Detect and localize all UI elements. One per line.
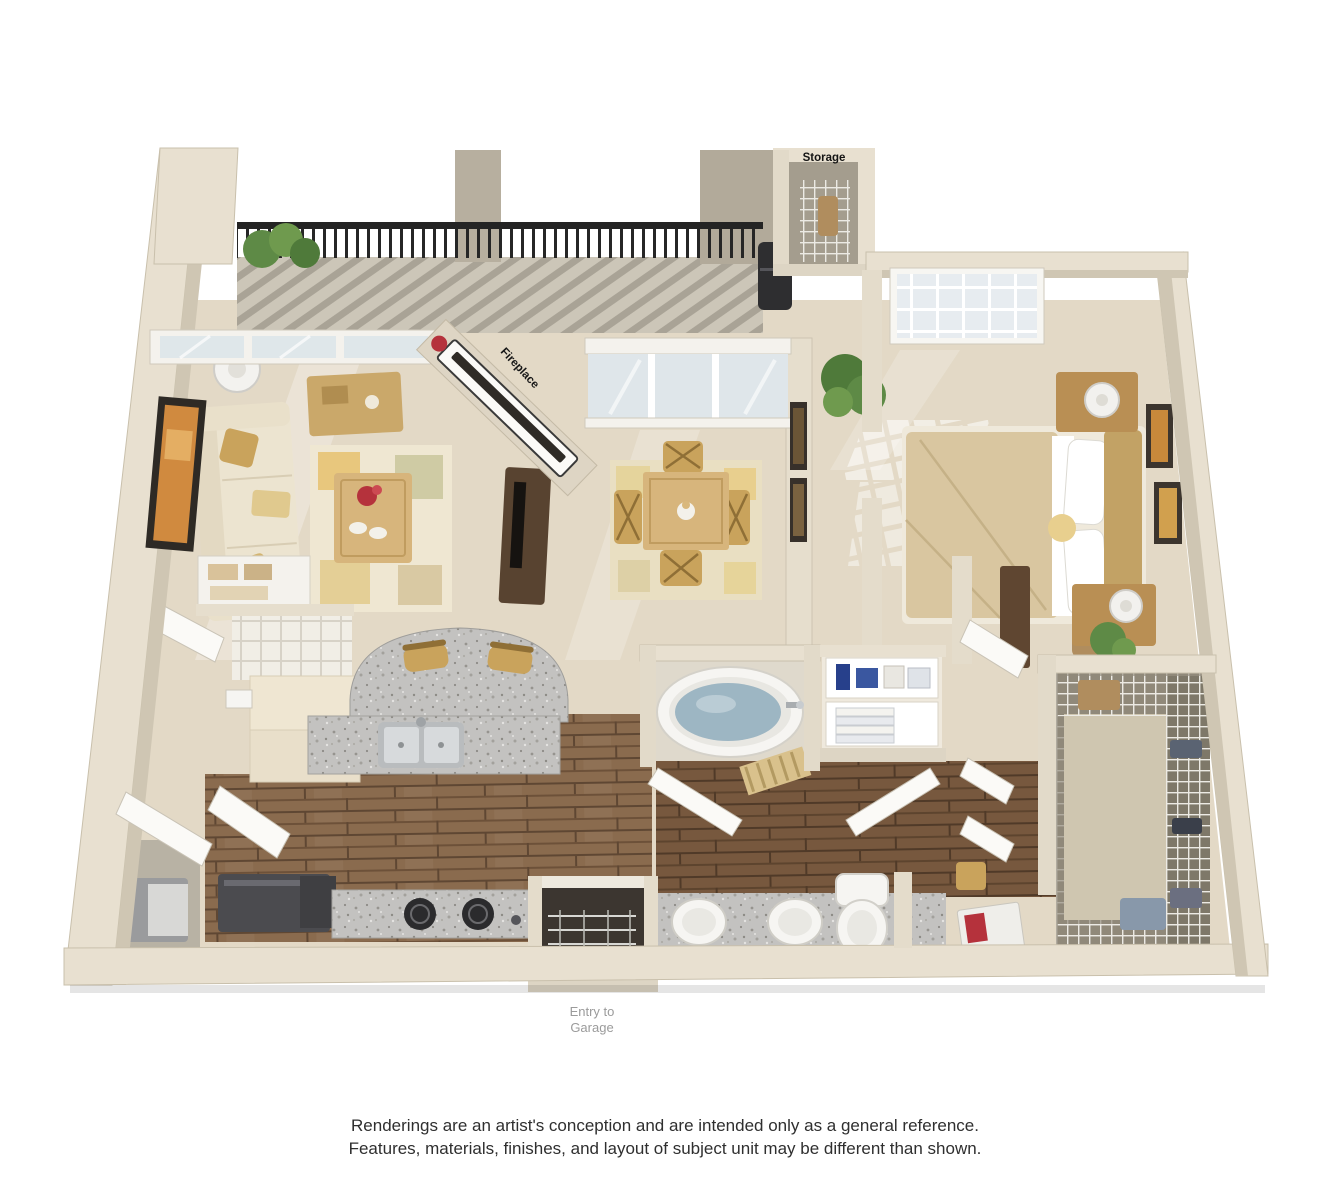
tub-faucet-knob bbox=[796, 701, 804, 709]
water-highlight bbox=[696, 695, 736, 713]
centerpiece bbox=[682, 501, 690, 509]
end-table bbox=[306, 372, 403, 437]
hanging-clothes bbox=[1170, 888, 1202, 908]
entry-tile-floor bbox=[232, 616, 352, 680]
sink-counter bbox=[308, 716, 560, 774]
bedroom-left-wall bbox=[862, 270, 882, 432]
stove-burner bbox=[462, 898, 494, 930]
niche-top-wall bbox=[820, 645, 946, 657]
disclaimer-line2: Features, materials, finishes, and layou… bbox=[0, 1137, 1330, 1160]
storage-room: Storage bbox=[773, 148, 875, 276]
floorplan-rendering: Storage bbox=[0, 0, 1330, 1200]
door-header bbox=[585, 338, 791, 354]
pillow bbox=[1063, 439, 1109, 526]
disclaimer: Renderings are an artist's conception an… bbox=[0, 1114, 1330, 1160]
bath-shelves bbox=[822, 652, 942, 756]
wall bbox=[773, 150, 789, 276]
bath-right-wall bbox=[804, 645, 820, 771]
window-glass bbox=[344, 336, 428, 358]
oven bbox=[300, 876, 336, 928]
rug-patch bbox=[398, 565, 442, 605]
sink-drain bbox=[438, 742, 444, 748]
door-mullion bbox=[712, 354, 719, 420]
art bbox=[1151, 410, 1168, 462]
dining-chair bbox=[614, 490, 642, 544]
folded-linens bbox=[244, 564, 272, 580]
kitchen-faucet bbox=[416, 717, 426, 727]
throw-blanket bbox=[251, 490, 291, 519]
accent-pillow bbox=[1048, 514, 1076, 542]
dining-sliding-door bbox=[585, 338, 791, 428]
entry-label-line1: Entry to bbox=[570, 1004, 615, 1019]
end-table-item bbox=[365, 395, 379, 409]
wall-art-frame bbox=[1154, 482, 1182, 544]
small-stool bbox=[956, 862, 986, 890]
art bbox=[793, 484, 804, 536]
shelf-box bbox=[1078, 680, 1120, 710]
foliage bbox=[823, 387, 853, 417]
balcony-deck bbox=[237, 257, 763, 333]
washer-lid bbox=[148, 884, 188, 936]
entry-label: Entry to Garage bbox=[570, 1004, 615, 1035]
dining-chair bbox=[660, 550, 702, 586]
nightstand bbox=[1056, 372, 1138, 432]
window-glass bbox=[160, 336, 244, 358]
bookshelf bbox=[198, 556, 310, 610]
table-bowl bbox=[369, 527, 387, 539]
bedroom-left-wall bbox=[862, 498, 882, 648]
entry-label-line2: Garage bbox=[570, 1020, 613, 1035]
bath-top-wall bbox=[640, 645, 820, 661]
toiletry-box bbox=[908, 668, 930, 688]
wall-pillar-topleft bbox=[154, 148, 238, 264]
niche-bottom-wall bbox=[820, 748, 946, 762]
walk-in-closet bbox=[1056, 673, 1210, 965]
balcony-railing bbox=[237, 222, 763, 229]
storage-label: Storage bbox=[803, 152, 846, 164]
small-appliance bbox=[226, 690, 252, 708]
sink-basin bbox=[682, 908, 716, 936]
bathroom bbox=[656, 652, 942, 763]
dining-chair bbox=[663, 441, 703, 473]
folded-linens bbox=[210, 586, 268, 600]
dining-room bbox=[610, 441, 762, 600]
folded-towel bbox=[836, 735, 894, 743]
stove-burner bbox=[404, 898, 436, 930]
bay-sill bbox=[542, 876, 644, 888]
sink-drain bbox=[398, 742, 404, 748]
hanging-clothes bbox=[1172, 818, 1202, 834]
art bbox=[793, 408, 804, 464]
closet-left-wall bbox=[1038, 655, 1056, 895]
rug-patch bbox=[618, 560, 650, 592]
lamp-finial bbox=[1120, 600, 1132, 612]
wall bbox=[773, 264, 875, 276]
end-table-item bbox=[322, 385, 349, 404]
end-table-top bbox=[306, 372, 403, 437]
coffee-table-top bbox=[334, 473, 412, 563]
counter bbox=[332, 890, 558, 938]
toilet-seat bbox=[847, 910, 877, 946]
closet-stool bbox=[1120, 898, 1166, 930]
wall-shadow bbox=[70, 985, 1265, 993]
toiletry-box bbox=[856, 668, 878, 688]
art bbox=[1159, 488, 1177, 538]
rug-patch bbox=[724, 562, 756, 594]
outer-wall-bottom bbox=[64, 944, 1268, 985]
lamp-finial bbox=[1096, 394, 1108, 406]
door-sill bbox=[585, 418, 791, 428]
closet-top-wall bbox=[1038, 655, 1216, 673]
bath-left-wall bbox=[640, 645, 656, 767]
disclaimer-line1: Renderings are an artist's conception an… bbox=[0, 1114, 1330, 1137]
stove-knob bbox=[511, 915, 521, 925]
sink-basin bbox=[778, 908, 812, 936]
living-window-wall bbox=[150, 330, 450, 364]
magazine-cover bbox=[964, 913, 988, 944]
closet-open-floor bbox=[1064, 714, 1168, 920]
storage-bag bbox=[818, 196, 838, 236]
folded-towel bbox=[836, 708, 894, 716]
garden-tub bbox=[657, 667, 804, 757]
art-detail bbox=[164, 429, 193, 461]
dining-table bbox=[643, 472, 729, 550]
wall-art-frame bbox=[1146, 404, 1173, 468]
folded-towel bbox=[836, 717, 894, 725]
cooktop-counter bbox=[332, 890, 558, 938]
tv-console bbox=[498, 467, 551, 605]
coffee-table bbox=[334, 473, 412, 563]
toiletry-bottle bbox=[836, 664, 850, 690]
folded-linens bbox=[208, 564, 238, 580]
kitchen-wood-floor bbox=[558, 714, 652, 778]
table-bowl bbox=[349, 522, 367, 534]
toilet-wall bbox=[894, 872, 912, 948]
bedroom-window bbox=[890, 268, 1044, 344]
door-mullion bbox=[648, 354, 655, 420]
hanging-clothes bbox=[1170, 740, 1202, 758]
folded-towel bbox=[836, 726, 894, 734]
foliage bbox=[290, 238, 320, 268]
flower-bouquet bbox=[372, 485, 382, 495]
window-grid-glass bbox=[897, 274, 1037, 338]
rug-patch bbox=[320, 560, 370, 604]
floorplan-svg: Storage bbox=[0, 0, 1330, 1200]
tub-water bbox=[675, 683, 781, 741]
kitchen-half-wall bbox=[196, 604, 354, 616]
toiletry-box bbox=[884, 666, 904, 688]
